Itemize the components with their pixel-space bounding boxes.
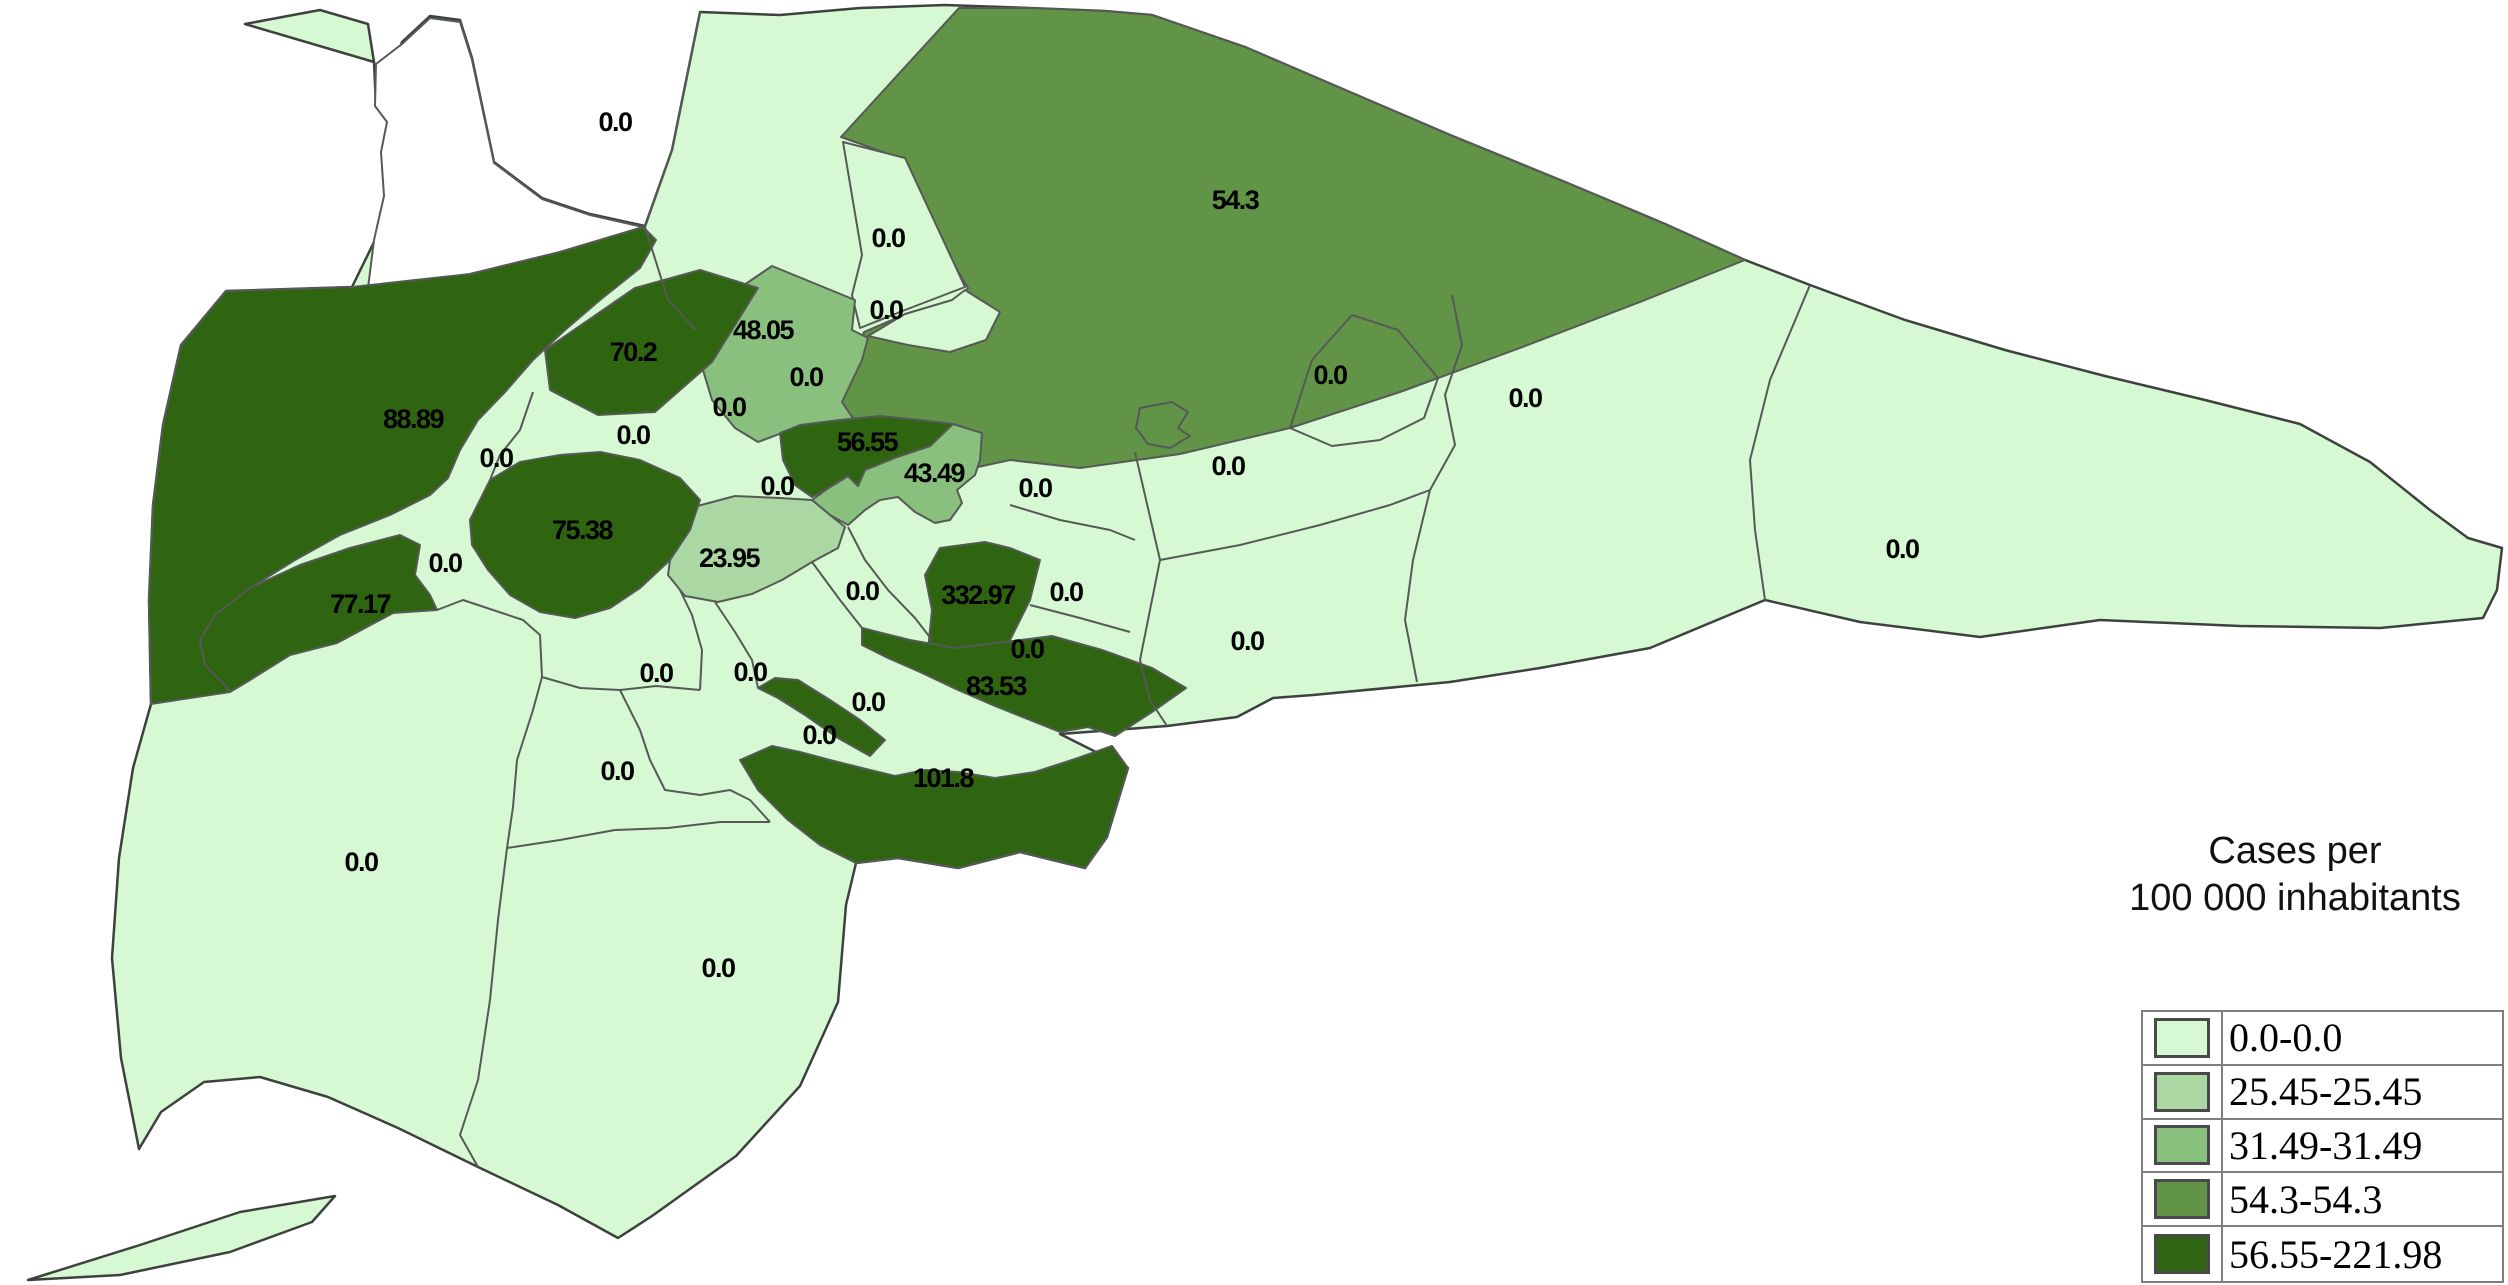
district-value-label: 0.0 [845,576,879,606]
legend-range-label: 31.49-31.49 [2223,1120,2502,1172]
district-map: 0.054.30.00.070.248.050.00.088.890.00.05… [0,0,2508,1285]
district-value-label: 0.0 [616,420,650,450]
legend-swatch [2154,1234,2210,1274]
legend-swatch-cell [2143,1012,2223,1064]
legend-swatch [2154,1125,2210,1165]
district-value-label: 332.97 [941,580,1015,610]
legend-row: 31.49-31.49 [2143,1120,2502,1174]
choropleth-map-screenshot: 0.054.30.00.070.248.050.00.088.890.00.05… [0,0,2508,1285]
legend-swatch-cell [2143,1227,2223,1281]
legend-range-label: 0.0-0.0 [2223,1012,2502,1064]
district-value-label: 0.0 [760,471,794,501]
legend-swatch [2154,1072,2210,1112]
legend-swatch [2154,1018,2210,1058]
legend-range-label: 25.45-25.45 [2223,1066,2502,1118]
district-value-label: 0.0 [1049,577,1083,607]
district-value-label: 70.2 [610,337,657,367]
legend-swatch-cell [2143,1120,2223,1172]
legend-row: 56.55-221.98 [2143,1227,2502,1281]
district-value-label: 0.0 [598,107,632,137]
district-value-label: 0.0 [344,847,378,877]
legend: 0.0-0.025.45-25.4531.49-31.4954.3-54.356… [2141,1010,2504,1283]
district-value-label: 0.0 [869,295,903,325]
district-value-label: 0.0 [1010,634,1044,664]
district-value-label: 0.0 [871,223,905,253]
district-value-label: 0.0 [1313,360,1347,390]
district-value-label: 0.0 [479,443,513,473]
legend-swatch-cell [2143,1173,2223,1225]
district-value-label: 0.0 [712,392,746,422]
district-value-label: 43.49 [904,458,966,488]
district-value-label: 0.0 [733,657,767,687]
district-sliver [28,1196,335,1280]
legend-swatch-cell [2143,1066,2223,1118]
district-value-label: 83.53 [966,671,1028,701]
legend-row: 54.3-54.3 [2143,1173,2502,1227]
district-value-label: 0.0 [1018,473,1052,503]
district-value-label: 0.0 [639,658,673,688]
legend-swatch [2154,1179,2210,1219]
legend-title-line2: 100 000 inhabitants [2085,875,2505,922]
legend-range-label: 56.55-221.98 [2223,1227,2502,1281]
district-value-label: 75.38 [552,515,614,545]
district-value-label: 0.0 [1885,534,1919,564]
district-value-label: 48.05 [733,315,795,345]
district-value-label: 23.95 [699,543,761,573]
district-value-label: 0.0 [428,548,462,578]
district-value-label: 0.0 [851,687,885,717]
legend-range-label: 54.3-54.3 [2223,1173,2502,1225]
legend-title: Cases per 100 000 inhabitants [2085,828,2505,922]
district-value-label: 0.0 [1508,383,1542,413]
district-value-label: 0.0 [701,953,735,983]
district-value-label: 0.0 [1211,451,1245,481]
district-value-label: 88.89 [383,404,445,434]
district-value-label: 54.3 [1212,185,1260,215]
district-value-label: 101.8 [913,763,975,793]
legend-title-line1: Cases per [2085,828,2505,875]
district-value-label: 0.0 [802,720,836,750]
district-value-label: 56.55 [837,427,899,457]
legend-row: 0.0-0.0 [2143,1012,2502,1066]
district-value-label: 0.0 [789,362,823,392]
legend-row: 25.45-25.45 [2143,1066,2502,1120]
district-value-label: 0.0 [600,756,634,786]
district-value-label: 0.0 [1230,626,1264,656]
district-value-label: 77.17 [330,589,391,619]
